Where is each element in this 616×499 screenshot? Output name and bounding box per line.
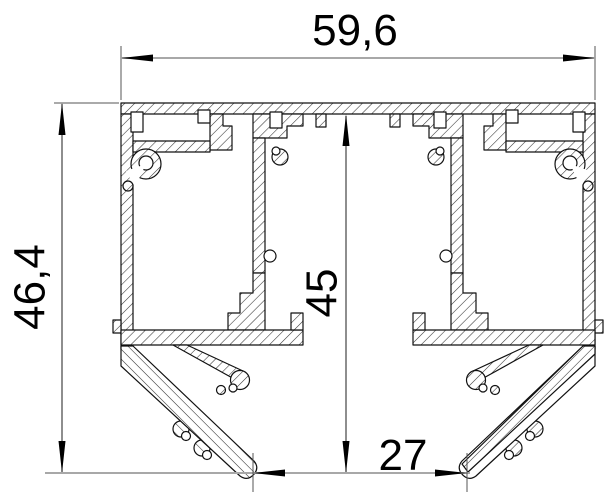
dimension-overall-width: 59,6 (121, 6, 595, 100)
profile-right-half (390, 110, 603, 395)
profile-cross-section (113, 103, 603, 478)
arrowhead-down-icon (343, 441, 350, 473)
left-angled-leg (121, 346, 257, 478)
arrowhead-up-icon (59, 103, 66, 135)
arrowhead-up-icon (343, 114, 350, 146)
dimension-inner-height: 45 (298, 114, 350, 473)
profile-left-half (113, 110, 326, 395)
top-flange (121, 103, 595, 114)
dimension-overall-width-label: 59,6 (312, 6, 398, 55)
arrowhead-left-icon (121, 55, 153, 62)
arrowhead-right-icon (563, 55, 595, 62)
arrowhead-down-icon (59, 441, 66, 473)
right-angled-leg (459, 346, 595, 478)
dimension-bottom-width: 27 (45, 431, 470, 492)
dimension-inner-height-label: 45 (298, 269, 347, 318)
dimension-overall-height-label: 46,4 (6, 244, 55, 330)
arrowhead-left-icon (253, 470, 285, 477)
dimension-overall-height: 46,4 (6, 103, 120, 473)
profile-drawing-svg: 59,6 46,4 45 27 (0, 0, 616, 499)
dimension-bottom-width-label: 27 (379, 431, 428, 480)
technical-drawing-canvas: 59,6 46,4 45 27 (0, 0, 616, 499)
